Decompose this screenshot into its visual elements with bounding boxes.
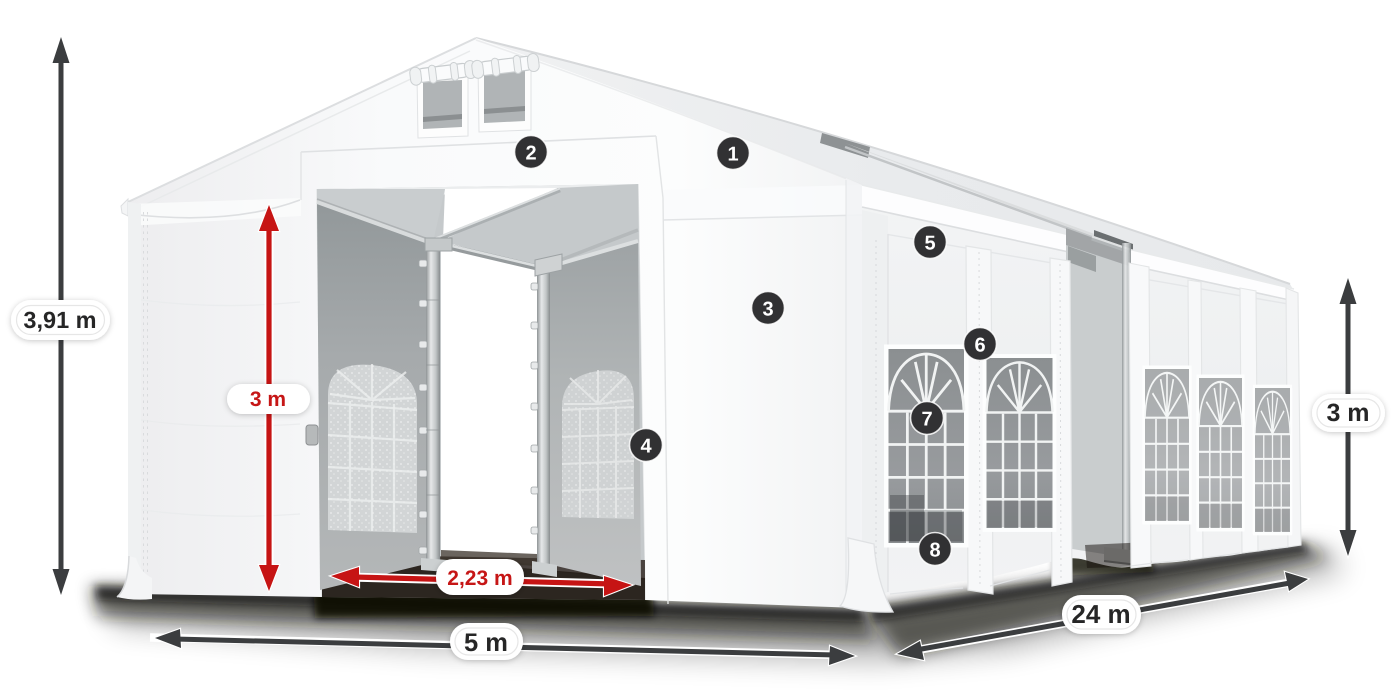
svg-text:1: 1 <box>727 144 738 166</box>
svg-text:7: 7 <box>921 409 932 431</box>
svg-text:3 m: 3 m <box>250 388 286 411</box>
svg-text:4: 4 <box>640 436 652 458</box>
svg-text:5: 5 <box>924 233 935 255</box>
svg-text:3,91 m: 3,91 m <box>23 307 96 333</box>
svg-text:2: 2 <box>525 143 536 165</box>
svg-text:24 m: 24 m <box>1071 599 1130 629</box>
svg-text:2,23 m: 2,23 m <box>447 567 512 590</box>
svg-text:8: 8 <box>929 540 940 562</box>
svg-text:5 m: 5 m <box>464 629 508 657</box>
svg-text:3 m: 3 m <box>1326 399 1369 427</box>
svg-text:3: 3 <box>762 299 773 321</box>
svg-text:6: 6 <box>974 335 985 357</box>
